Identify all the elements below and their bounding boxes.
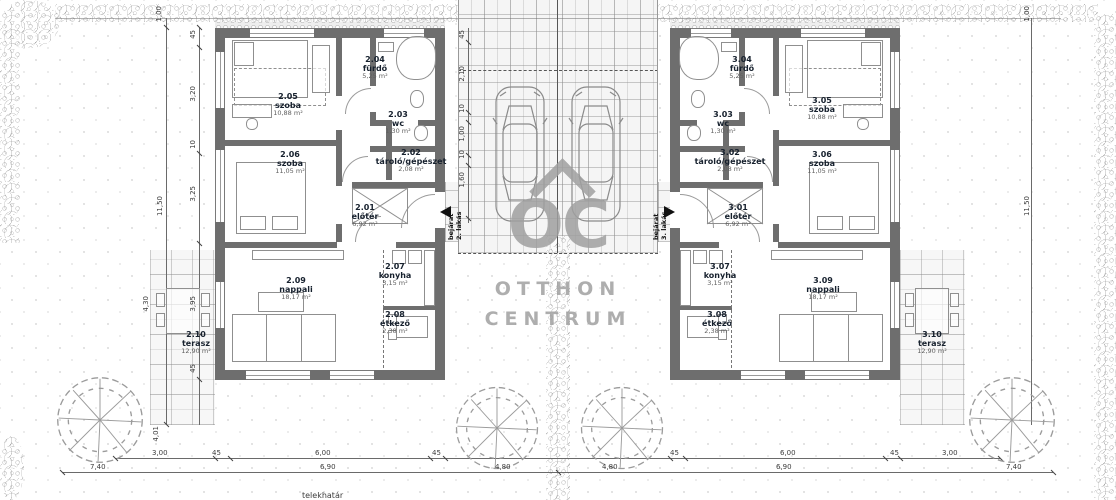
- room-number: 3.07: [688, 262, 752, 271]
- watermark-text-line1: OTTHON: [488, 280, 628, 299]
- room-label-3-05: 3.05 szoba 10,88 m²: [787, 96, 857, 122]
- room-area: 12,90 m²: [898, 348, 966, 355]
- dim-label: 11,50: [156, 196, 164, 216]
- partition: [336, 130, 342, 186]
- room-number: 2.10: [162, 330, 230, 339]
- window: [805, 370, 869, 380]
- dim-label: 11,50: [1023, 196, 1031, 216]
- partition: [773, 130, 779, 186]
- pillow: [234, 42, 254, 66]
- terrace-chair: [201, 293, 210, 307]
- dim-label: 45: [432, 449, 441, 457]
- dim-label: 1,00: [458, 126, 466, 142]
- window: [801, 28, 865, 38]
- dim-label: 45: [189, 30, 197, 39]
- watermark-text-line2: CENTRUM: [483, 310, 633, 329]
- room-area: 6,92 m²: [330, 221, 400, 228]
- sideboard: [252, 250, 344, 260]
- room-label-2-08: 2.08 étkező 2,38 m²: [363, 310, 427, 336]
- dim-label: 6,00: [780, 449, 796, 457]
- terrace-chair: [201, 313, 210, 327]
- room-number: 2.03: [368, 110, 428, 119]
- window: [215, 150, 225, 222]
- partition: [680, 242, 719, 248]
- room-area: 3,15 m²: [363, 280, 427, 287]
- hedge-corner-bottomleft: [0, 436, 24, 500]
- room-number: 3.04: [707, 55, 777, 64]
- room-label-3-10: 3.10 terasz 12,90 m²: [898, 330, 966, 356]
- watermark-logo: OC: [498, 192, 618, 258]
- room-area: 1,30 m²: [368, 128, 428, 135]
- room-label-3-02: 3.02 tároló/gépészet 2,08 m²: [687, 148, 773, 174]
- dim-label: 6,90: [320, 463, 336, 471]
- hedge-top-right: [658, 4, 1098, 22]
- terrace-chair: [950, 293, 959, 307]
- room-area: 11,05 m²: [787, 168, 857, 175]
- sofa: [779, 314, 883, 362]
- window: [890, 150, 900, 222]
- dim-label: 10: [458, 104, 466, 113]
- terrace-chair: [950, 313, 959, 327]
- driveway-dashed-line-top: [458, 70, 658, 71]
- wardrobe: [785, 45, 803, 93]
- lot-boundary-label: telekhatár: [302, 491, 343, 500]
- hedge-top-left: [55, 4, 458, 22]
- room-label-2-07: 2.07 konyha 3,15 m²: [363, 262, 427, 288]
- room-label-2-03: 2.03 wc 1,30 m²: [368, 110, 428, 136]
- dim-label: 4,80: [495, 463, 511, 471]
- room-area: 18,17 m²: [788, 294, 858, 301]
- room-number: 2.01: [330, 203, 400, 212]
- dim-label: 4,80: [602, 463, 618, 471]
- room-number: 3.05: [787, 96, 857, 105]
- room-label-3-07: 3.07 konyha 3,15 m²: [688, 262, 752, 288]
- pillow: [240, 216, 266, 230]
- hedge-left-edge: [0, 28, 20, 243]
- room-label-3-06: 3.06 szoba 11,05 m²: [787, 150, 857, 176]
- sink: [721, 42, 737, 52]
- partition: [779, 140, 890, 146]
- window: [250, 28, 314, 38]
- dim-label: 3,00: [942, 449, 958, 457]
- room-number: 3.09: [788, 276, 858, 285]
- entrance-label-line: 3. lakás: [660, 188, 668, 240]
- room-label-3-09: 3.09 nappali 18,17 m²: [788, 276, 858, 302]
- room-label-2-06: 2.06 szoba 11,05 m²: [255, 150, 325, 176]
- terrace-table: [915, 288, 949, 334]
- dim-label: 3,00: [152, 449, 168, 457]
- dim-label: 6,90: [776, 463, 792, 471]
- room-label-2-09: 2.09 nappali 18,17 m²: [261, 276, 331, 302]
- dim-label: 6,00: [315, 449, 331, 457]
- room-number: 3.06: [787, 150, 857, 159]
- tree: [576, 382, 668, 474]
- entrance-label-unit-3: bejárat 3. lakás: [652, 188, 668, 240]
- site-plan: 2.05 szoba 10,88 m² 2.04 fürdő 5,25 m² 2…: [0, 0, 1116, 500]
- toilet: [410, 90, 424, 108]
- room-label-3-08: 3.08 étkező 2,38 m²: [685, 310, 749, 336]
- dim-label: 3,95: [189, 296, 197, 312]
- dim-label: 1,00: [1023, 6, 1031, 22]
- dim-label: 10: [458, 150, 466, 159]
- room-number: 2.07: [363, 262, 427, 271]
- entrance-label-line: bejárat: [652, 188, 660, 240]
- room-area: 3,15 m²: [688, 280, 752, 287]
- dim-label: 1,00: [155, 6, 163, 22]
- dim-line-left-inner: [199, 28, 200, 425]
- window: [330, 370, 374, 380]
- dim-label: 3,25: [189, 186, 197, 202]
- room-label-2-01: 2.01 előtér 6,92 m²: [330, 203, 400, 229]
- window: [215, 52, 225, 108]
- room-area: 2,08 m²: [687, 166, 773, 173]
- partition: [225, 242, 337, 248]
- room-area: 2,38 m²: [363, 328, 427, 335]
- dim-line-driveway: [468, 28, 469, 223]
- terrace-chair: [905, 293, 914, 307]
- sofa-cushion-line: [301, 315, 302, 361]
- sofa-cushion-line: [813, 315, 814, 361]
- entrance-label-line: bejárat: [447, 188, 455, 240]
- window: [890, 282, 900, 328]
- dim-label: 4,30: [142, 296, 150, 312]
- room-label-2-05: 2.05 szoba 10,88 m²: [253, 92, 323, 118]
- dim-line-left-outer: [166, 18, 167, 425]
- room-area: 10,88 m²: [253, 110, 323, 117]
- room-number: 2.08: [363, 310, 427, 319]
- room-label-2-02: 2.02 tároló/gépészet 2,08 m²: [368, 148, 454, 174]
- room-area: 1,30 m²: [691, 128, 755, 135]
- pillow: [849, 216, 875, 230]
- room-label-2-04: 2.04 fürdő 5,25 m²: [340, 55, 410, 81]
- room-area: 6,92 m²: [703, 221, 773, 228]
- window: [215, 282, 225, 328]
- terrace-chair: [156, 293, 165, 307]
- room-area: 2,08 m²: [368, 166, 454, 173]
- toilet: [691, 90, 705, 108]
- room-area: 10,88 m²: [787, 114, 857, 121]
- room-number: 2.04: [340, 55, 410, 64]
- partition: [778, 242, 890, 248]
- hedge-right-edge: [1094, 14, 1116, 500]
- dim-label: 45: [670, 449, 679, 457]
- room-number: 3.10: [898, 330, 966, 339]
- dim-line-bottom-upper: [115, 458, 1000, 459]
- sink: [378, 42, 394, 52]
- room-number: 3.03: [691, 110, 755, 119]
- room-number: 2.09: [261, 276, 331, 285]
- dim-label: 10: [189, 140, 197, 149]
- room-label-2-10: 2.10 terasz 12,90 m²: [162, 330, 230, 356]
- room-number: 2.05: [253, 92, 323, 101]
- wardrobe: [312, 45, 330, 93]
- terrace-chair: [905, 313, 914, 327]
- window: [246, 370, 310, 380]
- dim-label: 45: [189, 364, 197, 373]
- entrance-label-unit-2: bejárat 2. lakás: [447, 188, 463, 240]
- hedge-center-divider: [546, 236, 570, 500]
- dim-label: 45: [458, 30, 466, 39]
- dim-line-right-outer: [1031, 18, 1032, 425]
- room-area: 5,25 m²: [340, 73, 410, 80]
- terrace-chair: [156, 313, 165, 327]
- dim-label: 7,40: [90, 463, 106, 471]
- room-area: 18,17 m²: [261, 294, 331, 301]
- window: [890, 52, 900, 108]
- chair: [857, 118, 869, 130]
- entrance-label-line: 2. lakás: [455, 188, 463, 240]
- lot-line-top: [55, 18, 1061, 19]
- sofa: [232, 314, 336, 362]
- room-area: 12,90 m²: [162, 348, 230, 355]
- dim-label: 3,20: [189, 86, 197, 102]
- dim-label: 2,10: [458, 66, 466, 82]
- chair: [246, 118, 258, 130]
- tree: [964, 372, 1060, 468]
- room-number: 3.08: [685, 310, 749, 319]
- partition: [773, 224, 779, 242]
- dim-label: 45: [890, 449, 899, 457]
- room-label-3-01: 3.01 előtér 6,92 m²: [703, 203, 773, 229]
- partition: [225, 140, 336, 146]
- room-number: 3.01: [703, 203, 773, 212]
- pillow: [817, 216, 843, 230]
- room-area: 2,38 m²: [685, 328, 749, 335]
- tree: [52, 372, 148, 468]
- dim-label: 1,60: [458, 172, 466, 188]
- dim-label: 4,01: [152, 426, 160, 442]
- partition: [396, 242, 435, 248]
- room-number: 2.06: [255, 150, 325, 159]
- window: [741, 370, 785, 380]
- sofa-cushion-line: [848, 315, 849, 361]
- room-label-3-03: 3.03 wc 1,30 m²: [691, 110, 755, 136]
- dim-label: 7,40: [1006, 463, 1022, 471]
- room-area: 11,05 m²: [255, 168, 325, 175]
- room-area: 5,25 m²: [707, 73, 777, 80]
- room-label-3-04: 3.04 fürdő 5,25 m²: [707, 55, 777, 81]
- sideboard: [771, 250, 863, 260]
- dim-label: 45: [212, 449, 221, 457]
- room-number: 2.02: [368, 148, 454, 157]
- room-number: 3.02: [687, 148, 773, 157]
- pillow: [861, 42, 881, 66]
- sofa-cushion-line: [266, 315, 267, 361]
- pillow: [272, 216, 298, 230]
- tree: [451, 382, 543, 474]
